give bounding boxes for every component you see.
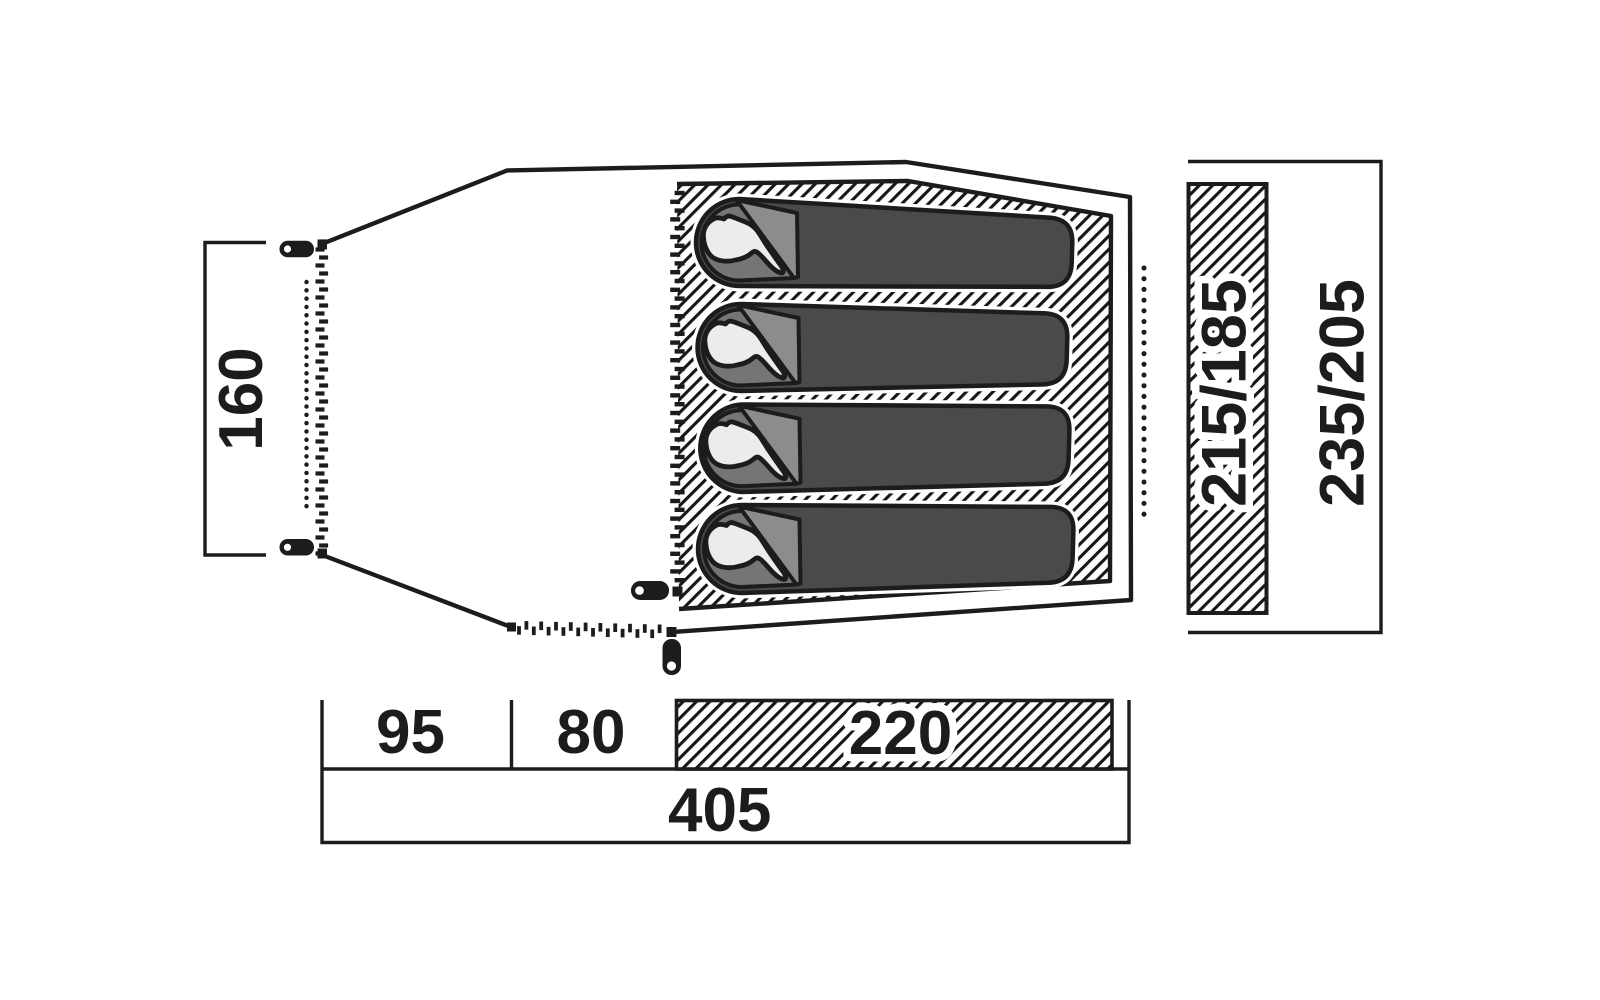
svg-text:220: 220 [849,699,952,768]
svg-text:235/205: 235/205 [1308,279,1378,507]
svg-text:405: 405 [668,776,771,845]
svg-text:215/185: 215/185 [1190,279,1260,507]
svg-text:160: 160 [207,347,276,450]
svg-text:95: 95 [376,698,445,767]
svg-text:80: 80 [557,698,626,767]
